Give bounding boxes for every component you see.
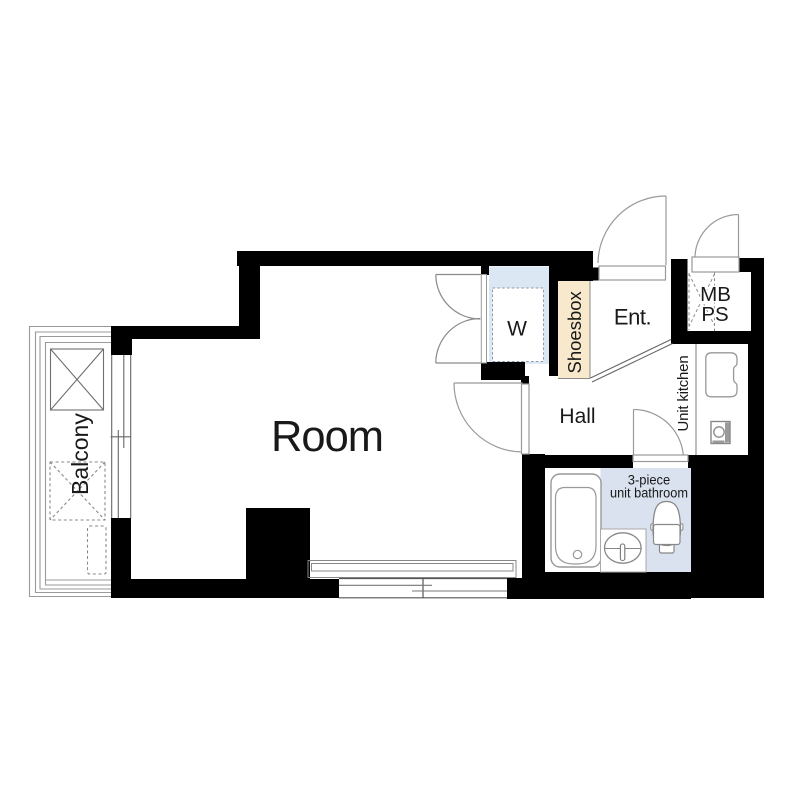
svg-text:W: W — [507, 318, 527, 341]
svg-text:Room: Room — [271, 413, 383, 461]
svg-text:Hall: Hall — [559, 405, 595, 428]
svg-text:Unit kitchen: Unit kitchen — [675, 356, 692, 432]
svg-text:Ent.: Ent. — [614, 305, 651, 330]
svg-text:PS: PS — [701, 303, 728, 326]
svg-text:Shoesbox: Shoesbox — [564, 290, 585, 373]
svg-text:unit bathroom: unit bathroom — [610, 486, 688, 501]
svg-text:Balcony: Balcony — [67, 413, 93, 495]
